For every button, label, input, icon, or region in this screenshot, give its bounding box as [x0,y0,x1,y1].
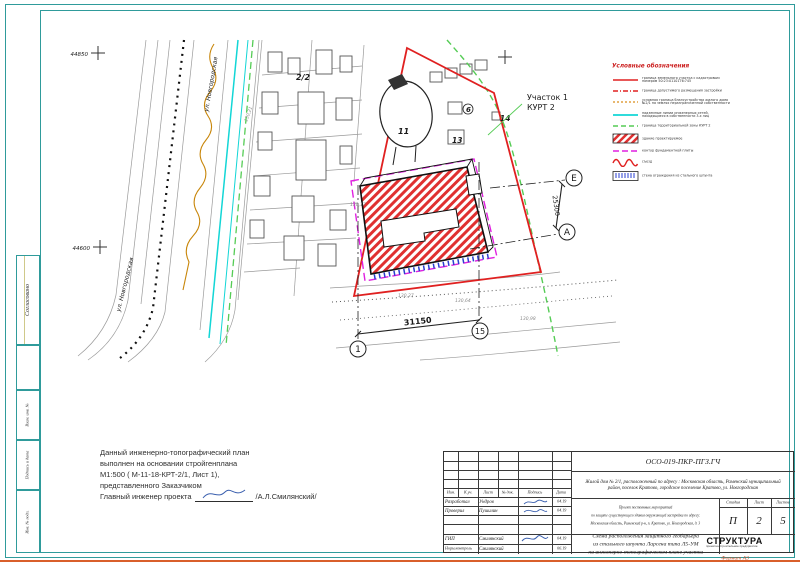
company-name: СТРУКТУРА [706,537,800,545]
format-label: Формат А3 [691,555,779,561]
project-line: по защите существующего здания окружающе… [591,514,700,519]
date-normcontrol: 06.19 [557,547,566,551]
axis-A-label: А [564,228,571,238]
red-solid-line-symbol [612,76,639,84]
notes-block: Данный инженерно-топографический план вы… [100,447,360,502]
name-razrabotal: Ундров [479,499,494,504]
legend-item: надземные линии инженерных сетей,находящ… [612,109,772,121]
date-proveril: 04.19 [557,508,566,512]
project-line: Проект постоянных мероприятий [619,506,672,511]
sheet-title-line: из стального шпунта Ларсена типа Л5-УМ [593,541,698,547]
bottom-contours [330,272,620,360]
document-code: ОСО-019-ПКР-ПГЗ.ГЧ [646,457,720,466]
elevation-mark: 130,17 [350,202,366,208]
object-address-line1: Жилой дом № 2/1, расположенный по адресу… [585,479,780,484]
sheets-value: 5 [780,515,786,527]
building-6-label: 6 [466,106,471,114]
col-kuch: К.уч. [464,490,473,494]
hatched-building-symbol [612,133,639,144]
role-gip: ГИП [445,537,455,542]
company-logo: СТРУКТУРА проектно-строительное предприя… [720,535,794,553]
legend-item: контур фундаментной плиты [612,147,772,155]
legend-item: граница территориальной зоны КУРТ 2 [612,122,772,130]
street-linework [78,40,259,362]
street-name-1: ул. Новгородская [115,256,136,313]
pond-label: 11 [398,127,409,136]
street-name-2: ул. Новгородская [203,56,220,113]
signature-icon [520,533,550,544]
name-proveril: Пушилин [479,508,498,513]
building-13-label: 13 [452,136,462,145]
red-dashdot-line-symbol [612,87,639,95]
legend-item: граница земельного участка с кадастровым… [612,74,772,86]
col-podpis: Подпись [528,490,543,494]
sheet-title-line: Схема расположения защитного геобарьера [592,533,699,539]
note-line: М1:500 ( М-11-18-КРТ-2/1, Лист 1), [100,469,360,480]
fence-line [120,40,184,358]
legend-item: граница допустимого размещения застройки [612,87,772,95]
proposed-building [351,159,497,281]
name-normcontrol: Смилянский [479,547,504,552]
signature-line [195,494,253,502]
note-line-signature: Главный инженер проекта/А.Л.Смилянский/ [100,491,360,502]
legend-title: Условные обозначения [612,63,743,70]
note-line: Данный инженерно-топографический план [100,447,360,458]
parcel-number-label: 2/2 [296,73,310,82]
sheet-value: 2 [756,515,762,527]
col-data: Дата [557,490,567,494]
company-tagline: проектно-строительное предприятие [706,545,758,548]
chief-engineer-label: Главный инженер проекта [100,492,192,501]
cyan-line-symbol [612,111,639,119]
signature-icon [522,498,548,506]
elevation-mark: 130,64 [455,298,471,304]
axis-E-label: Е [571,174,577,184]
coordinate-top: 44850 [71,52,89,58]
green-boundary-street [226,40,253,346]
green-dashed-line-symbol [612,122,639,130]
col-ndok: № док. [502,490,514,494]
dimension-vertical: 25300 [551,195,562,217]
site-label-line2: КУРТ 2 [527,103,555,112]
magenta-dashed-symbol [612,147,639,155]
legend-item: стена ограждения из стального шпунта [612,170,772,182]
chief-engineer-name: /А.Л.Смилянский/ [256,492,317,501]
note-line: выполнен на основании стройгенплана [100,458,360,469]
date-gip: 04.19 [557,537,566,541]
sheet-header: Лист [754,500,764,504]
title-block: Изм. К.уч. Лист № док. Подпись Дата Разр… [443,451,794,553]
sheet-title-line: на инженерно-топографическом плане участ… [588,549,703,555]
elevation-mark: 130,27 [398,293,414,299]
role-proveril: Проверил [445,508,464,513]
elevation-mark: 130,98 [520,316,536,322]
legend-item: здание проектируемое [612,133,772,144]
axis-15-label: 15 [475,327,485,336]
date-razrabotal: 04.19 [557,499,566,503]
object-address-line2: район, поселок Кратово, городское поселе… [608,485,758,490]
signature-icon [201,486,249,502]
sheet-pile-symbol [612,170,639,182]
legend-item: съезд [612,157,772,167]
building-tower [466,174,482,195]
role-normcontrol: Норм.контроль [445,547,472,551]
red-wave-symbol [612,157,639,167]
col-list: Лист [483,490,493,494]
drawing-sheet: Согласовано Взам. инв. № Подпись и дата … [0,0,800,566]
col-izm: Изм. [447,490,455,494]
building-14-label: 14 [500,114,510,123]
orange-dotted-line-symbol [612,98,639,106]
project-line: Московская область, Раменский р-н, п. Кр… [591,522,701,527]
name-gip: Смилянский [479,537,504,542]
legend: Условные обозначения граница земельного … [612,62,772,183]
coordinate-mid: 44600 [73,246,91,252]
legend-item: условная граница благоустройства жилого … [612,96,772,108]
site-label-line1: Участок 1 [527,93,568,102]
stage-value: П [729,515,737,527]
signature-icon [522,507,548,515]
stage-header: Стадия [726,500,740,504]
axis-1-label: 1 [355,345,361,355]
sheets-header: Листов [776,500,789,504]
role-razrabotal: Разработал [445,499,470,504]
